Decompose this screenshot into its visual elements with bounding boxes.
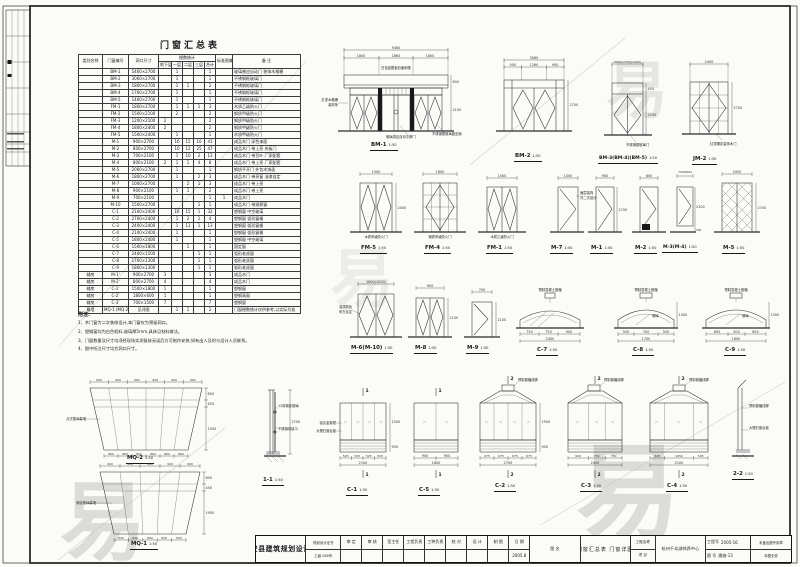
- table-cell: 弧形老虎窗: [233, 265, 301, 272]
- sheet-number-label: 图 号: [707, 553, 716, 559]
- table-cell: 不锈钢框玻璃门: [233, 83, 301, 90]
- table-cell: 1800×600: [129, 293, 159, 300]
- table-row: BM-23060×270011不锈钢框玻璃门: [79, 76, 301, 83]
- table-cell: BM-3: [103, 83, 129, 90]
- svg-text:750: 750: [526, 330, 532, 334]
- table-cell: [183, 69, 194, 76]
- table-cell: 11: [183, 223, 194, 230]
- table-cell: 900×2100: [129, 188, 159, 195]
- table-cell: [183, 300, 194, 307]
- svg-text:2400: 2400: [591, 461, 600, 465]
- table-cell: [159, 90, 172, 97]
- table-cell: 成品木门 带上亮: [233, 188, 301, 195]
- table-cell: 弧形老虎窗: [233, 251, 301, 258]
- table-cell: [172, 118, 183, 125]
- table-row: FM-11800×27001113木质乙级防火门: [79, 104, 301, 111]
- table-cell: [216, 132, 233, 139]
- svg-text:900: 900: [107, 462, 113, 466]
- svg-text:1800: 1800: [436, 170, 445, 174]
- svg-text:2: 2: [598, 472, 601, 478]
- table-cell: M-2: [103, 146, 129, 153]
- table-cell: [194, 300, 205, 307]
- project-name: 杭州千岛湖休养中心: [655, 536, 705, 562]
- elevation-m-6: 1800(1500) 油漆颜色 甲方自定 M-6(M-10)1:50: [344, 280, 408, 364]
- svg-text:2250: 2250: [648, 113, 657, 117]
- elevation-fm-1: 1500 木质乙级防火门 FM-11:50: [474, 170, 530, 254]
- table-cell: 1: [205, 293, 216, 300]
- svg-text:大理石窗台板: 大理石窗台板: [749, 425, 769, 430]
- table-cell: FM-1: [103, 104, 129, 111]
- table-cell: 成品木门 带百叶 厂家配套: [233, 153, 301, 160]
- svg-text:650: 650: [752, 330, 758, 334]
- table-cell: [159, 265, 172, 272]
- table-cell: [183, 265, 194, 272]
- svg-text:1800: 1800: [732, 337, 741, 341]
- table-cell: 塑钢窗 弧形窗楣: [233, 216, 301, 223]
- svg-text:525: 525: [366, 454, 372, 458]
- svg-text:1950: 1950: [206, 511, 215, 515]
- table-cell: [159, 181, 172, 188]
- table-cell: [159, 69, 172, 76]
- table-cell: 3060×2700: [129, 76, 159, 83]
- table-cell: [159, 195, 172, 202]
- table-cell: 1: [205, 69, 216, 76]
- table-cell: [194, 69, 205, 76]
- col-header: 洞口尺寸: [129, 55, 159, 69]
- table-row: 辅房C-1'1500×180011塑钢窗: [79, 286, 301, 293]
- svg-text:2700: 2700: [504, 461, 513, 465]
- table-cell: 7: [159, 300, 172, 307]
- svg-text:2000: 2000: [733, 170, 742, 174]
- svg-text:2700: 2700: [292, 420, 301, 424]
- elevation-drawing: 2 预制窗楣线脚 525 1050 525 2100 2: [638, 372, 720, 482]
- table-cell: [216, 272, 233, 279]
- svg-text:1500: 1500: [392, 420, 401, 424]
- svg-text:525: 525: [698, 454, 704, 458]
- figure-caption: 1-11:50: [262, 478, 284, 486]
- table-cell: 2: [183, 216, 194, 223]
- table-cell: 800×2700: [129, 279, 159, 286]
- svg-text:675: 675: [498, 454, 504, 458]
- table-cell: 木质甲级防火门: [233, 132, 301, 139]
- svg-text:900: 900: [566, 330, 572, 334]
- table-cell: [159, 174, 172, 181]
- table-cell: 1500×2700: [129, 202, 159, 209]
- table-cell: 成品木门: [233, 279, 301, 286]
- svg-text:525: 525: [343, 454, 349, 458]
- table-cell: [159, 139, 172, 146]
- elevation-c-5: 1 900 900 1800 1 C-51:50: [404, 384, 468, 496]
- elevation-drawing: 2 预制窗楣线脚 675 675 675 675 2700 1500 900 2: [468, 372, 548, 482]
- table-cell: C-1: [103, 209, 129, 216]
- svg-text:2400: 2400: [705, 60, 714, 64]
- elevation-drawing: 1800(1700)(1400) 450 2250 不锈钢框玻璃门: [600, 60, 656, 156]
- table-cell: [216, 202, 233, 209]
- table-cell: 弧形老虎窗: [233, 258, 301, 265]
- table-cell: [172, 258, 183, 265]
- table-cell: [216, 237, 233, 244]
- job-number-label: 工程号: [707, 539, 719, 545]
- table-cell: [183, 97, 194, 104]
- svg-text:红漆木格栅: 红漆木格栅: [322, 97, 339, 102]
- svg-text:525: 525: [354, 454, 360, 458]
- svg-text:500: 500: [663, 330, 669, 334]
- svg-text:700: 700: [643, 330, 649, 334]
- svg-text:900: 900: [147, 462, 153, 466]
- table-cell: [183, 279, 194, 286]
- table-cell: [172, 251, 183, 258]
- table-row: M-4800×210021148成品木门 带上亮 厂家配套: [79, 160, 301, 167]
- sign-space: [383, 550, 403, 563]
- elevation-c-4: 2 预制窗楣线脚 525 1050 525 2100 2 C-41:50: [638, 372, 720, 494]
- table-cell: [216, 300, 233, 307]
- table-cell: 不锈钢框玻璃门: [233, 97, 301, 104]
- table-cell: 辅房: [79, 279, 103, 286]
- figure-caption: C-71:50: [536, 348, 558, 356]
- figure-caption: C-51:50: [418, 488, 440, 496]
- svg-text:750: 750: [545, 330, 551, 334]
- table-cell: 1: [172, 188, 183, 195]
- table-cell: [79, 216, 103, 223]
- table-row: 辅房M-1'900×270033成品木门: [79, 272, 301, 279]
- table-cell: M-3: [103, 153, 129, 160]
- table-cell: M-5: [103, 167, 129, 174]
- table-cell: 木质乙级防火门: [233, 104, 301, 111]
- svg-text:1860: 1860: [392, 54, 401, 58]
- table-cell: 1: [194, 104, 205, 111]
- table-cell: 1: [205, 202, 216, 209]
- elevation-m-8: 900 2100 M-81:50: [404, 280, 456, 364]
- svg-text:900: 900: [552, 63, 558, 67]
- svg-text:1050: 1050: [675, 454, 683, 458]
- sign-label: 校 对: [446, 536, 466, 550]
- table-cell: 3: [205, 104, 216, 111]
- table-cell: 2: [205, 188, 216, 195]
- table-cell: 塑钢窗 中空玻璃: [233, 237, 301, 244]
- elevation-drawing: 900 2700: [588, 170, 622, 242]
- table-row: M-3700×2100110213成品木门 带百叶 厂家配套: [79, 153, 301, 160]
- sign-label: 设 计: [467, 536, 487, 550]
- table-cell: 1: [205, 286, 216, 293]
- svg-text:2: 2: [511, 376, 514, 382]
- svg-text:750: 750: [611, 454, 617, 458]
- table-cell: [183, 272, 194, 279]
- svg-text:预制窗楣线脚: 预制窗楣线脚: [604, 377, 624, 382]
- svg-text:12厚钢化玻璃: 12厚钢化玻璃: [278, 403, 299, 408]
- svg-text:650: 650: [714, 330, 720, 334]
- date-value: 2005.8: [509, 550, 529, 563]
- stamp-note: 未盖出图专用章: [751, 536, 791, 550]
- svg-text:1800(1500): 1800(1500): [366, 280, 387, 284]
- table-cell: 700×2100: [129, 153, 159, 160]
- elevation-m-7: 1000 面层装饰 详二次设计 M-71:50: [548, 170, 586, 254]
- table-cell: 1: [194, 181, 205, 188]
- table-cell: 成品木门 带观察窗: [233, 202, 301, 209]
- svg-text:点式玻璃幕墙: 点式玻璃幕墙: [66, 416, 86, 421]
- table-cell: 4: [159, 279, 172, 286]
- table-cell: [183, 258, 194, 265]
- table-row: C-51800×240011塑钢窗 中空玻璃: [79, 237, 301, 244]
- table-cell: [183, 195, 194, 202]
- table-cell: [159, 258, 172, 265]
- table-cell: FM-4: [103, 125, 129, 132]
- table-cell: 1: [194, 258, 205, 265]
- svg-text:675: 675: [526, 454, 532, 458]
- elevation-drawing: 1 900 900 1800 1: [404, 384, 468, 488]
- table-cell: 1200×2100: [129, 118, 159, 125]
- svg-text:1800: 1800: [426, 54, 435, 58]
- svg-text:钢质甲级防火门: 钢质甲级防火门: [428, 234, 451, 239]
- elevation-c-2: 2 预制窗楣线脚 675 675 675 675 2700 1500 900 2…: [468, 372, 548, 494]
- table-cell: [79, 223, 103, 230]
- table-cell: 5460×2700: [129, 69, 159, 76]
- table-cell: [194, 279, 205, 286]
- table-cell: 1: [172, 132, 183, 139]
- table-cell: 钢质平开门 外包木饰面: [233, 167, 301, 174]
- table-cell: 900×2700: [129, 139, 159, 146]
- elevation-m-1: 900 2700 M-11:50: [588, 170, 622, 254]
- table-cell: 辅房: [79, 272, 103, 279]
- table-cell: 10: [194, 139, 205, 146]
- table-cell: [159, 209, 172, 216]
- table-cell: 成品木门 带上亮: [233, 181, 301, 188]
- svg-text:675: 675: [484, 454, 490, 458]
- table-cell: 2: [159, 160, 172, 167]
- elevation-drawing: 1800(1500) 油漆颜色 甲方自定: [344, 280, 408, 342]
- table-cell: [216, 76, 233, 83]
- table-cell: [79, 174, 103, 181]
- table-cell: 2: [205, 111, 216, 118]
- table-cell: 成品木门 带亮窗 油漆自定: [233, 174, 301, 181]
- cert-line: 规划设计证书: [306, 536, 340, 550]
- svg-text:900: 900: [190, 378, 196, 382]
- table-cell: [194, 111, 205, 118]
- table-cell: 成品木门 带上亮 夹板门: [233, 146, 301, 153]
- table-cell: [183, 167, 194, 174]
- title-block: 淳安县建筑规划设计所 规划设计证书 乙级 048号 审 定 审 核 室主任 工程…: [255, 535, 792, 563]
- table-row: M-52000×270011钢质平开门 外包木饰面: [79, 167, 301, 174]
- table-cell: 700×2100: [129, 195, 159, 202]
- table-cell: [216, 153, 233, 160]
- table-cell: 塑钢窗 弧形窗楣: [233, 223, 301, 230]
- note-line: 4、图中所注尺寸均为洞口尺寸。: [78, 345, 330, 354]
- svg-text:装饰条: 装饰条: [328, 102, 339, 107]
- table-cell: 成品木门 深色漆面: [233, 139, 301, 146]
- table-cell: [183, 286, 194, 293]
- col-header: 标准图集: [216, 55, 233, 69]
- table-cell: 1: [216, 195, 233, 202]
- table-cell: [194, 118, 205, 125]
- table-cell: 1: [172, 230, 183, 237]
- table-cell: [79, 258, 103, 265]
- table-cell: M-2': [103, 279, 129, 286]
- table-cell: 1: [172, 160, 183, 167]
- elevation-drawing: 预制混凝土窗楣 玻璃 500 700 500 1700 1300: [610, 280, 684, 344]
- svg-text:1: 1: [366, 388, 369, 394]
- svg-text:800: 800: [646, 174, 652, 178]
- figure-caption: BM-3(BM-4)(BM-5)1:50: [598, 157, 658, 164]
- figure-caption: C-81:50: [632, 348, 654, 356]
- table-cell: 1800×2400: [129, 237, 159, 244]
- table-cell: [172, 286, 183, 293]
- table-cell: 2400×2400: [129, 223, 159, 230]
- table-cell: 塑钢高窗: [233, 293, 301, 300]
- table-cell: 1: [159, 286, 172, 293]
- svg-text:1: 1: [366, 472, 369, 478]
- table-cell: M-1: [103, 139, 129, 146]
- table-cell: 15: [183, 209, 194, 216]
- table-cell: [79, 111, 103, 118]
- elevation-drawing: 1800 钢质甲级防火门: [410, 170, 470, 242]
- elevation-drawing: 2400 2700 红漆雕花装饰木门: [676, 60, 742, 156]
- table-cell: 2: [194, 153, 205, 160]
- table-cell: 1: [205, 258, 216, 265]
- table-cell: 塑钢窗 弧形窗楣: [233, 230, 301, 237]
- table-row: FM-21500×210022钢质甲级防火门: [79, 111, 301, 118]
- table-cell: 1: [172, 167, 183, 174]
- table-cell: 1: [205, 167, 216, 174]
- table-cell: 1: [205, 244, 216, 251]
- table-row: M-8900×2100112成品木门 带上亮: [79, 188, 301, 195]
- svg-text:2: 2: [682, 472, 685, 478]
- elevation-c-9: 预制混凝土窗楣 玻璃 650 500 650 1800 1300 C-91:50: [698, 280, 774, 364]
- figure-caption: M-21:50: [634, 246, 657, 254]
- section-drawing: 预制窗楣线脚 大理石窗台板: [724, 372, 772, 486]
- table-cell: 1: [205, 132, 216, 139]
- svg-text:1500: 1500: [542, 420, 551, 424]
- figure-caption: C-31:50: [580, 484, 602, 492]
- table-cell: [216, 146, 233, 153]
- table-cell: 1: [194, 202, 205, 209]
- table-cell: 1: [183, 104, 194, 111]
- figure-caption: M-11:50: [590, 246, 613, 254]
- table-cell: 1500×2100: [129, 111, 159, 118]
- table-cell: [79, 118, 103, 125]
- table-cell: 15: [183, 139, 194, 146]
- table-cell: 成品木门: [233, 272, 301, 279]
- sign-label: 工种负责: [425, 536, 445, 550]
- table-row: C-81700×130011弧形老虎窗: [79, 258, 301, 265]
- table-cell: [159, 244, 172, 251]
- svg-text:红漆雕花装饰木门: 红漆雕花装饰木门: [710, 141, 736, 146]
- table-cell: [216, 293, 233, 300]
- table-cell: [172, 293, 183, 300]
- table-cell: [194, 76, 205, 83]
- sign-space: [362, 550, 382, 563]
- table-cell: 1: [183, 160, 194, 167]
- table-cell: C-2: [103, 216, 129, 223]
- table-cell: [183, 293, 194, 300]
- table-cell: 辅房: [79, 300, 103, 307]
- table-row: M-101500×270011成品木门 带观察窗: [79, 202, 301, 209]
- table-title: 门窗汇总表: [78, 38, 302, 51]
- svg-text:2100: 2100: [498, 318, 507, 322]
- table-cell: 13: [205, 153, 216, 160]
- svg-text:预制窗楣线脚: 预制窗楣线脚: [689, 377, 709, 382]
- table-cell: 2: [205, 125, 216, 132]
- cert-line: 乙级 048号: [306, 550, 340, 563]
- table-cell: 1500×1800: [129, 244, 159, 251]
- table-cell: [159, 237, 172, 244]
- svg-text:预制混凝土窗楣: 预制混凝土窗楣: [634, 287, 658, 292]
- table-cell: [194, 244, 205, 251]
- table-cell: 1500×1800: [129, 286, 159, 293]
- group-header: 樘数统计: [159, 55, 216, 62]
- table-cell: 辅房: [79, 286, 103, 293]
- svg-text:白色铝塑板包面雨篷: 白色铝塑板包面雨篷: [381, 65, 411, 70]
- table-cell: 1: [205, 251, 216, 258]
- table-cell: M-1': [103, 272, 129, 279]
- table-row: C-32400×2400111113塑钢窗 弧形窗楣: [79, 223, 301, 230]
- svg-text:450: 450: [208, 402, 214, 406]
- col-header: 备 注: [233, 55, 301, 69]
- svg-text:900: 900: [575, 454, 581, 458]
- figure-caption: M-51:50: [722, 246, 745, 254]
- svg-text:1500: 1500: [498, 174, 507, 178]
- svg-text:预制窗楣线脚: 预制窗楣线脚: [518, 377, 538, 382]
- svg-text:铝合金窗框: 铝合金窗框: [320, 420, 337, 425]
- table-cell: [216, 181, 233, 188]
- table-cell: [194, 293, 205, 300]
- table-cell: [159, 132, 172, 139]
- figure-caption: JM-21:50: [692, 157, 717, 165]
- table-cell: C-7: [103, 251, 129, 258]
- table-cell: 1: [172, 104, 183, 111]
- figure-caption: C-41:50: [666, 484, 688, 492]
- table-cell: [79, 132, 103, 139]
- table-row: M-71000×2700213成品木门 带上亮: [79, 181, 301, 188]
- svg-text:1950: 1950: [208, 427, 217, 431]
- elevation-drawing: 900 2100: [404, 280, 456, 342]
- svg-text:2700: 2700: [619, 208, 628, 212]
- table-cell: 钢质甲级防火门: [233, 118, 301, 125]
- figure-caption: 2-21:50: [732, 472, 754, 480]
- table-cell: 2100×2400: [129, 209, 159, 216]
- table-cell: [216, 111, 233, 118]
- table-cell: [216, 244, 233, 251]
- elevation-m-5: 2000 2700 M-51:50: [710, 170, 764, 254]
- table-cell: [216, 223, 233, 230]
- section-drawing: 2700 12厚钢化玻璃 不锈钢驳接爪: [254, 382, 298, 482]
- elevation-c-3: 2 预制窗楣线脚 900 750 750 2400 2 C-31:50: [556, 372, 634, 494]
- elevation-bm-1: 5460 1800 1860 1800 白色铝塑板包面雨篷 600 2100 红…: [336, 46, 456, 158]
- table-row: FM-51500×240011木质甲级防火门: [79, 132, 301, 139]
- table-cell: [79, 146, 103, 153]
- table-cell: C-5: [103, 237, 129, 244]
- col-header: 合计: [205, 62, 216, 69]
- figure-caption: M-6(M-10)1:50: [350, 346, 393, 354]
- svg-text:300: 300: [696, 228, 702, 232]
- table-cell: 塑钢窗 中空玻璃: [233, 209, 301, 216]
- elevation-fm-5: 1500 2400 木质甲级防火门 FM-51:50: [346, 170, 406, 254]
- table-cell: 1: [194, 216, 205, 223]
- elevation-mq-1: 900 900 900 900 900 840 840 840 840 840 …: [86, 460, 214, 556]
- table-cell: 4: [205, 279, 216, 286]
- table-cell: [79, 202, 103, 209]
- table-cell: 1: [205, 90, 216, 97]
- table-cell: [194, 125, 205, 132]
- sign-label: 制 图: [488, 536, 508, 550]
- table-cell: [79, 76, 103, 83]
- table-cell: 1: [205, 265, 216, 272]
- table-cell: [194, 167, 205, 174]
- table-cell: 成品木门 带上亮 厂家配套: [233, 160, 301, 167]
- table-cell: 4: [205, 216, 216, 223]
- table-cell: 1000×2700: [129, 181, 159, 188]
- figure-caption: BM-11:50: [370, 143, 398, 151]
- table-cell: [183, 202, 194, 209]
- table-row: BM-41700×270011不锈钢框玻璃门: [79, 90, 301, 97]
